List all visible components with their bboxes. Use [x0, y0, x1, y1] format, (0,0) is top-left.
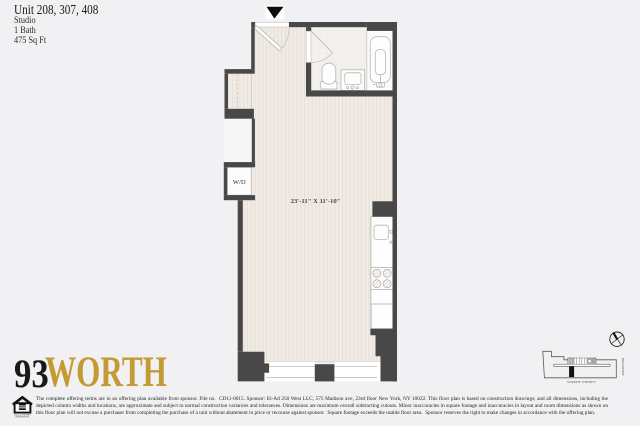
svg-text:OPPORTUNITY: OPPORTUNITY: [16, 416, 30, 417]
svg-text:WORTH STREET: WORTH STREET: [567, 380, 596, 384]
svg-text:BROADWAY: BROADWAY: [621, 358, 625, 377]
svg-text:23'-11" X 11'-10": 23'-11" X 11'-10": [291, 198, 341, 205]
svg-text:W/D: W/D: [233, 179, 246, 186]
